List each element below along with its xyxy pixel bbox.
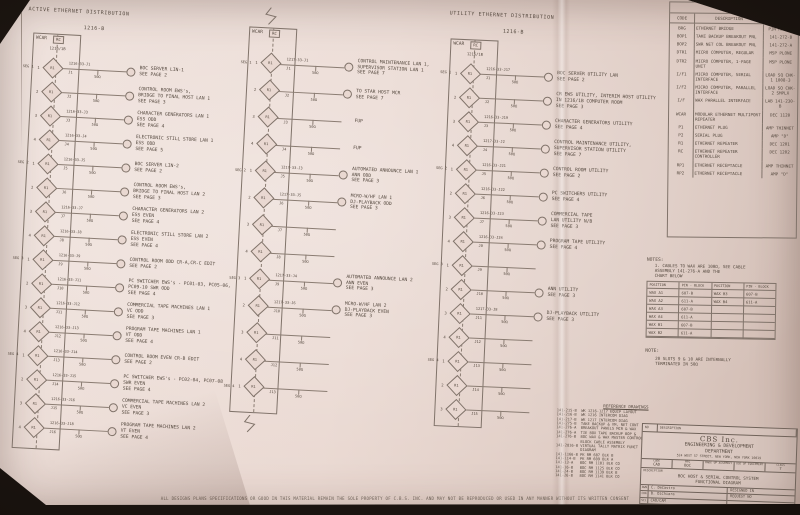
repeater-diamond-icon: R1 bbox=[253, 187, 274, 208]
cable-number: 1217-33-J2 bbox=[483, 139, 505, 144]
jack-label: J2 bbox=[285, 93, 290, 97]
field-cell: CODE CAD bbox=[641, 459, 672, 468]
destination-label: TO STAR HOST MCR SEE PAGE 7 bbox=[356, 89, 401, 103]
destination: PROGRAM TAPE MACHINES LAN 1 VT ODD SEE P… bbox=[112, 326, 201, 348]
connector-circle-icon bbox=[125, 91, 134, 100]
segment-label bbox=[224, 358, 238, 359]
slot-number: 2 bbox=[444, 286, 450, 291]
drawn-label: DWN bbox=[641, 485, 649, 491]
destination-label: BOC SERVER UTILITY LAN SEE PAGE 2 bbox=[557, 71, 618, 86]
repeater-label: R1 bbox=[44, 185, 49, 189]
connector-circle-icon bbox=[338, 170, 347, 179]
connector-circle-icon bbox=[119, 211, 128, 220]
destination-label: ELECTRONIC STILL STORE LAN 1 ESS ODD SEE… bbox=[135, 135, 213, 157]
slot-number: 1 bbox=[445, 262, 451, 267]
terminator-label: 50Ω bbox=[85, 243, 92, 247]
tap-line: 1216-33-J1 J1 50Ω bbox=[68, 56, 127, 83]
segment-label bbox=[15, 186, 29, 187]
repeater-label: R1 bbox=[260, 223, 265, 227]
segment-label bbox=[237, 115, 251, 116]
tap-line: 1216-33-J19 J3 50Ω bbox=[483, 110, 542, 137]
repeater-diamond-icon: R1 bbox=[455, 183, 476, 204]
jack-label: J8 bbox=[276, 255, 281, 259]
segment-label bbox=[232, 196, 246, 197]
photo-background: ACTIVE ETHERNET DISTRIBUTION 1216-B WCAR… bbox=[0, 0, 800, 515]
jack-label: J11 bbox=[475, 316, 482, 320]
destination: PC SWITCHER EWS's - PC02-04, PC07-08 SWR… bbox=[110, 374, 223, 398]
segment-label bbox=[438, 96, 452, 97]
legend-description: ETHERNET RECEPTACLE bbox=[692, 169, 762, 178]
repeater-diamond-icon: R1 bbox=[26, 369, 47, 390]
repeater-label: R1 bbox=[468, 71, 472, 75]
section-title: ACTIVE ETHERNET DISTRIBUTION bbox=[28, 6, 129, 17]
tap-line: 1216-33-J13 J12 50Ω bbox=[54, 320, 113, 347]
connector-circle-icon bbox=[115, 283, 124, 292]
repeater-label: R1 bbox=[43, 209, 48, 213]
cable-number: 1216-33-J5 bbox=[64, 157, 86, 162]
connector-circle-icon bbox=[116, 259, 125, 268]
legend-description: MICRO COMPUTER, 1-PAGE UNIT bbox=[694, 56, 764, 70]
cable-number: 1217-33-J1 bbox=[287, 57, 309, 62]
repeater-label: R1 bbox=[33, 401, 38, 405]
destination: CONTROL MAINTENANCE UTILITY, SUPERVISOR … bbox=[540, 140, 631, 162]
jack-label: J9 bbox=[477, 268, 481, 272]
destination-label: PROGRAM TAPE MACHINES LAN 2 VT EVEN SEE … bbox=[120, 423, 196, 445]
legend-mfg: LAB 141-230-B bbox=[763, 97, 797, 111]
tap-line: 1216-33-J12 J11 50Ω bbox=[55, 296, 114, 323]
segment-label bbox=[8, 330, 22, 331]
cable-number: 1216-33-J14 bbox=[54, 349, 78, 354]
segment-label bbox=[429, 312, 443, 313]
tap-line: 1216-33-J8 J8 50Ω bbox=[59, 224, 118, 251]
repeater-diamond-icon: R1 bbox=[39, 129, 60, 150]
designed-label: DESIGNED IN bbox=[728, 488, 756, 495]
jack-label: J8 bbox=[59, 238, 64, 242]
break-symbol-icon bbox=[242, 415, 257, 434]
repeater-label: R1 bbox=[262, 196, 267, 200]
cable-number: 1217-33-J6 bbox=[274, 300, 296, 305]
repeater-diamond-icon: R1 bbox=[34, 225, 55, 246]
destination: PC SWITCHERS UTILITY SEE PAGE 4 bbox=[539, 190, 608, 205]
terminator-label: 50Ω bbox=[510, 128, 517, 132]
jack-label: J12 bbox=[271, 362, 278, 366]
slot-number: 1 bbox=[30, 160, 36, 165]
destination-label: CONTROL ROOM UTILITY SEE PAGE 2 bbox=[553, 167, 609, 181]
legend-table: LEGEND CODE DESCRIPTION MFG BRG ETHERNET… bbox=[667, 1, 799, 238]
repeater-controller-box: RC bbox=[470, 41, 481, 49]
tap-line: 1216-33-J24 J8 50Ω bbox=[478, 230, 537, 257]
destination-label: FUP bbox=[354, 119, 363, 125]
destination-label: DJ-PLAYBACK UTILITY SEE PAGE 3 bbox=[546, 311, 599, 325]
tap-line: J8 50Ω bbox=[276, 239, 335, 269]
destination: AUTOMATED ANNOUNCE LAN 1 ANN ODD SEE PAG… bbox=[338, 166, 418, 188]
legend-mfg: DEC 1120 bbox=[763, 110, 797, 124]
destination-label: CONTROL MAINTENANCE LAN 1, SUPERVISOR ST… bbox=[357, 59, 430, 81]
repeater-diamond-icon: R1 bbox=[459, 87, 480, 108]
repeater-diamond-icon: R1 bbox=[30, 297, 51, 318]
slot-number: 4 bbox=[22, 328, 28, 333]
tap-line: J14 50Ω bbox=[472, 374, 531, 401]
cable-number: 1216-33-J1 bbox=[69, 61, 91, 66]
legend-code: I/F1 bbox=[669, 69, 693, 83]
terminator-label: 50Ω bbox=[504, 248, 511, 252]
wcar-label: WCAR bbox=[453, 42, 464, 47]
paper-sheet: ACTIVE ETHERNET DISTRIBUTION 1216-B WCAR… bbox=[0, 0, 800, 515]
repeater-diamond-icon: R1 bbox=[40, 105, 61, 126]
destination: CR EWS UTILITY, INTERIM HOST UTILITY IN … bbox=[543, 92, 656, 115]
tap-line: 1216-33-J18 J16 50Ω bbox=[49, 416, 108, 443]
jack-label: J10 bbox=[476, 292, 483, 296]
repeater-controller-box: RC bbox=[269, 29, 280, 38]
repeater-controller-box: RC bbox=[53, 36, 64, 45]
destination: FUP bbox=[341, 116, 363, 126]
legend-mfg: LOAD SQ CHK-1 1008-3 bbox=[763, 70, 797, 84]
tap-line: 1216-33-J17 J1 50Ω bbox=[486, 62, 545, 89]
legend-code: P2 bbox=[669, 131, 693, 139]
jack-label: J7 bbox=[278, 228, 283, 232]
terminator-label: 50Ω bbox=[312, 70, 319, 74]
connector-circle-icon bbox=[538, 216, 547, 225]
tap-line: 1217-33-J3 J5 50Ω bbox=[280, 158, 339, 188]
terminator-label: 50Ω bbox=[502, 296, 509, 300]
jack-label: J12 bbox=[474, 340, 481, 344]
terminator-label: 50Ω bbox=[305, 205, 312, 209]
tap-line: 1217-33-J4 J9 50Ω bbox=[274, 266, 333, 296]
legend-code: BOP2 bbox=[670, 40, 694, 48]
repeater-label: R1 bbox=[467, 95, 471, 99]
terminator-label: 50Ω bbox=[503, 272, 510, 276]
repeater-label: R1 bbox=[255, 331, 260, 335]
cable-number: 1216-33-J17 bbox=[486, 67, 510, 72]
legend-description: MODULAR ETHERNET MULTIPORT REPEATER bbox=[693, 109, 763, 123]
drawn-name: C. DeCastro bbox=[649, 485, 677, 492]
tap-line: 1216-33-J21 J5 50Ω bbox=[481, 158, 540, 185]
repeater-diamond-icon: R1 bbox=[445, 398, 466, 419]
jack-label: J7 bbox=[61, 214, 66, 218]
cable-number: 1216-33-J8 bbox=[60, 229, 82, 234]
tap-line: 1216-33-J22 J6 50Ω bbox=[480, 182, 539, 209]
repeater-label: R1 bbox=[464, 167, 468, 171]
repeater-label: R1 bbox=[252, 385, 257, 389]
repeater-diamond-icon: R1 bbox=[448, 326, 469, 347]
destination-label: CHARACTER GENERATORS UTILITY SEE PAGE 4 bbox=[555, 119, 633, 134]
slot-number: 2 bbox=[24, 280, 30, 285]
connector-circle-icon bbox=[126, 67, 135, 76]
destination-label: FUP bbox=[353, 146, 362, 152]
tap-line: 1217-33-J2 J4 50Ω bbox=[482, 134, 541, 161]
repeater-label: R1 bbox=[37, 329, 42, 333]
destination-label: COMMERCIAL TAPE LAN UTILITY N/B SEE PAGE… bbox=[550, 212, 592, 232]
drawing-number-row: DRAWING NO & REV 141-120-D SHEET bbox=[640, 504, 794, 515]
tap-line: J9 50Ω bbox=[477, 254, 536, 281]
tap-line: J3 50Ω bbox=[283, 104, 342, 134]
destination: AUTOMATED ANNOUNCE LAN 2 ANN EVEN SEE PA… bbox=[333, 274, 413, 296]
cell-pin-block-2 bbox=[742, 330, 774, 339]
slot-number: 2 bbox=[34, 88, 40, 93]
destination: CONTROL ROOM EWS's, BRIDGE TO FINAL HOST… bbox=[120, 182, 206, 204]
destination-label: BOC SERVER LIN-2 SEE PAGE 2 bbox=[134, 162, 179, 176]
tap-line: 1216-33-J3 J3 50Ω bbox=[65, 104, 124, 131]
terminator-label: 50Ω bbox=[83, 290, 90, 294]
destination-label: ANN UTILITY SEE PAGE 3 bbox=[547, 287, 578, 300]
jack-label: J11 bbox=[272, 336, 279, 340]
segment-label bbox=[428, 336, 442, 337]
connector-circle-icon bbox=[543, 96, 552, 105]
jack-label: J15 bbox=[51, 406, 58, 410]
repeater-label: R1 bbox=[466, 119, 470, 123]
slot-number: 4 bbox=[27, 232, 33, 237]
terminator-label: 50Ω bbox=[500, 344, 507, 348]
connector-circle-icon bbox=[121, 163, 130, 172]
sheet-label: SHEET bbox=[771, 509, 795, 515]
table-body: WAX A1 607-B WAX B3 607-B WAX A2 611-A W… bbox=[647, 289, 776, 339]
segment-label: SEG 3 bbox=[11, 256, 25, 261]
jack-label: J4 bbox=[64, 142, 69, 146]
destination: PC SWITCHER EWS's - PC01-03, PC05-06, PC… bbox=[115, 278, 231, 302]
tap-line: 1216-33-J9 J9 50Ω bbox=[58, 248, 117, 275]
slot-number: 2 bbox=[19, 376, 25, 381]
notes-block: NOTES: 1. CABLES TO WAX ARE 100Ω, SEE CA… bbox=[645, 257, 793, 369]
jack-label: J13 bbox=[269, 389, 276, 393]
sub-ref-label: 1216/1B bbox=[467, 51, 483, 57]
slot-number: 1 bbox=[453, 70, 459, 75]
tap-line: J12 50Ω bbox=[474, 326, 533, 353]
repeater-label: R1 bbox=[48, 113, 53, 117]
note-2-heading: NOTE: bbox=[645, 349, 659, 354]
wcar-label: WCAR bbox=[36, 36, 47, 42]
repeater-diamond-icon: R1 bbox=[256, 133, 277, 154]
terminator-label: 50Ω bbox=[303, 232, 310, 236]
destination: ANN UTILITY SEE PAGE 3 bbox=[534, 286, 578, 300]
legend-row: RP2 ETHERNET RECEPTACLE AMP "D" bbox=[668, 169, 796, 179]
terminator-label: 50Ω bbox=[509, 152, 516, 156]
cable-number: 1216-33-J24 bbox=[479, 235, 503, 240]
repeater-label: R1 bbox=[46, 161, 51, 165]
repeater-diamond-icon: R1 bbox=[36, 177, 57, 198]
jack-label: J15 bbox=[471, 412, 478, 416]
field-value: BOC bbox=[672, 463, 702, 469]
destination: ELECTRONIC STILL STORE LAN 1 ESS ODD SEE… bbox=[122, 134, 213, 157]
slot-number: 2 bbox=[439, 382, 445, 387]
jack-label: J14 bbox=[52, 382, 59, 386]
cable-number: 1216-33-J4 bbox=[65, 133, 87, 138]
repeater-diamond-icon: R1 bbox=[252, 214, 273, 235]
destination: BOC SERVER LIN-2 SEE PAGE 2 bbox=[121, 161, 179, 176]
tap-line: 1217-33-J6 J10 50Ω bbox=[273, 293, 332, 323]
legend-code: P1 bbox=[669, 122, 693, 130]
slot-number: 4 bbox=[243, 248, 249, 253]
terminator-label: 50Ω bbox=[89, 171, 96, 175]
slot-number: 4 bbox=[17, 424, 23, 429]
tap-line: 1216-33-J11 J10 50Ω bbox=[57, 272, 116, 299]
destination: MCRO-W/HF LAN 2 DJ-PLAYBACK EVEN SEE PAG… bbox=[331, 301, 389, 322]
legend-code: I/F bbox=[669, 96, 693, 110]
repeater-diamond-icon: R1 bbox=[454, 207, 475, 228]
jack-label: J7 bbox=[480, 220, 484, 224]
repeater-diamond-icon: R1 bbox=[31, 273, 52, 294]
legend-row: RC ETHERNET REPEATER CONTROLLER DEC 1202 bbox=[669, 147, 797, 162]
connector-circle-icon bbox=[107, 426, 116, 435]
connector-circle-icon bbox=[331, 305, 340, 314]
connector-circle-icon bbox=[544, 72, 553, 81]
segment-label bbox=[18, 138, 32, 139]
repeater-diamond-icon: R1 bbox=[250, 241, 271, 262]
tap-line: J11 50Ω bbox=[272, 320, 331, 350]
slot-number: 1 bbox=[35, 64, 41, 69]
repeater-label: R1 bbox=[263, 169, 268, 173]
repeater-diamond-icon: R1 bbox=[29, 321, 50, 342]
repeater-label: R1 bbox=[266, 115, 271, 119]
tap-line: 1216-33-J14 J13 50Ω bbox=[53, 344, 112, 371]
destination-label: AUTOMATED ANNOUNCE LAN 1 ANN ODD SEE PAG… bbox=[351, 167, 418, 188]
destination-label: PROGRAM TAPE UTILITY SEE PAGE 4 bbox=[549, 239, 605, 253]
repeater-label: R1 bbox=[253, 358, 258, 362]
segment-label bbox=[424, 408, 438, 409]
repeater-diamond-icon: R1 bbox=[35, 201, 56, 222]
segment-label: SEG 1 bbox=[21, 64, 35, 69]
repeater-diamond-icon: R1 bbox=[32, 249, 53, 270]
jack-label: J4 bbox=[483, 148, 487, 152]
slot-number: 1 bbox=[248, 168, 254, 173]
cable-number: 1217-33-J4 bbox=[275, 273, 297, 278]
wcar-label: WCAR bbox=[252, 30, 263, 36]
terminator-label: 50Ω bbox=[309, 124, 316, 128]
terminator-label: 50Ω bbox=[84, 266, 91, 270]
terminator-label: 50Ω bbox=[79, 362, 86, 366]
segment-label bbox=[4, 401, 18, 402]
connector-circle-icon bbox=[539, 192, 548, 201]
repeater-label: R1 bbox=[460, 263, 464, 267]
slot-number: 4 bbox=[238, 356, 244, 361]
repeater-diamond-icon: R1 bbox=[258, 106, 279, 127]
cable-number: 1216-33-J16 bbox=[51, 397, 75, 402]
segment-label bbox=[434, 192, 448, 193]
connector-circle-icon bbox=[337, 197, 346, 206]
cable-number: 1217-33-J3 bbox=[281, 165, 303, 170]
connector-circle-icon bbox=[110, 379, 119, 388]
destination-label: MCRO-W/HF LAN 2 DJ-PLAYBACK EVEN SEE PAG… bbox=[344, 301, 389, 321]
repeater-label: R1 bbox=[47, 137, 52, 141]
repeater-label: R1 bbox=[39, 281, 44, 285]
repeater-diamond-icon: R1 bbox=[245, 349, 266, 370]
segment-label: SEG 4 bbox=[222, 383, 236, 388]
segment-label: SEG 1 bbox=[439, 70, 453, 75]
legend-row: WCAR MODULAR ETHERNET MULTIPORT REPEATER… bbox=[669, 109, 797, 124]
segment-label bbox=[225, 331, 239, 332]
slot-number: 3 bbox=[239, 329, 245, 334]
tap-line: J4 50Ω bbox=[282, 131, 341, 161]
connector-circle-icon bbox=[343, 89, 352, 98]
destination: PROGRAM TAPE UTILITY SEE PAGE 4 bbox=[536, 238, 605, 253]
jack-label: J1 bbox=[486, 76, 490, 80]
connector-circle-icon bbox=[333, 278, 342, 287]
destination: DJ-PLAYBACK UTILITY SEE PAGE 3 bbox=[533, 310, 599, 325]
repeater-label: R1 bbox=[463, 191, 467, 195]
signature-right: DESIGNED IN REQUEST NO bbox=[728, 488, 795, 509]
jack-label: J3 bbox=[283, 120, 288, 124]
destination: FUP bbox=[340, 143, 362, 153]
terminator-label: 50Ω bbox=[298, 340, 305, 344]
jack-label: J2 bbox=[485, 100, 489, 104]
repeater-diamond-icon: R1 bbox=[450, 302, 471, 323]
destination-label: CHARACTER GENERATORS LAN 1 ESS ODD SEE P… bbox=[136, 111, 209, 133]
destination: CONTROL MAINTENANCE LAN 1, SUPERVISOR ST… bbox=[344, 58, 430, 80]
sheet-ref-label: 1216-B bbox=[83, 25, 104, 32]
destination: MCRO-W/HF LAN 1 DJ-PLAYBACK ODD SEE PAGE… bbox=[337, 193, 392, 214]
tap-line: J2 50Ω bbox=[284, 77, 343, 107]
jack-label: J10 bbox=[57, 286, 64, 290]
jack-label: J3 bbox=[484, 124, 488, 128]
repeater-diamond-icon: R1 bbox=[246, 322, 267, 343]
slot-number: 1 bbox=[236, 383, 242, 388]
destination: ELECTRONIC STILL STORE LAN 2 ESS EVEN SE… bbox=[117, 230, 208, 253]
destination-label: PC SWITCHER EWS's - PC01-03, PC05-06, PC… bbox=[128, 279, 231, 302]
title-block: NO DESCRIPTION CBS Inc. ENGINEERING & DE… bbox=[639, 423, 798, 515]
jack-label: J5 bbox=[280, 174, 285, 178]
note-1-text: 1. CABLES TO WAX ARE 100Ω, SEE CABLE ASS… bbox=[655, 263, 793, 280]
segment-label bbox=[14, 210, 28, 211]
jack-label: J9 bbox=[58, 262, 63, 266]
jack-label: J10 bbox=[273, 309, 280, 313]
sheet-ref-label: 1216-B bbox=[503, 29, 524, 36]
terminator-label: 50Ω bbox=[306, 178, 313, 182]
segment-label bbox=[235, 142, 249, 143]
destination-label: CR EWS UTILITY, INTERIM HOST UTILITY IN … bbox=[556, 92, 656, 114]
field-label: MADE UP ASSEMBLY bbox=[704, 461, 734, 465]
destination-label: COMMERCIAL TAPE MACHINES LAN 2 VC EVEN S… bbox=[121, 399, 205, 421]
cable-number: 1216-33-J9 bbox=[59, 253, 81, 258]
destination: BOC SERVER LIN-1 SEE PAGE 2 bbox=[126, 65, 184, 80]
repeater-label: R1 bbox=[269, 61, 274, 65]
repeater-diamond-icon: R1 bbox=[456, 159, 477, 180]
tap-line: J15 50Ω bbox=[471, 398, 530, 425]
repeater-label: R1 bbox=[259, 250, 264, 254]
legend-row: I/F WAX PARALLEL INTERFACE LAB 141-230-B bbox=[669, 96, 797, 111]
destination: BOC SERVER UTILITY LAN SEE PAGE 2 bbox=[544, 71, 618, 86]
slot-number: 4 bbox=[446, 238, 452, 243]
request-row: REQUEST NO bbox=[728, 494, 795, 503]
jack-label: J14 bbox=[472, 388, 479, 392]
connector-circle-icon bbox=[124, 115, 133, 124]
segment-label bbox=[5, 378, 19, 379]
terminator-label: 50Ω bbox=[302, 259, 309, 263]
slot-number: 2 bbox=[246, 194, 252, 199]
repeater-label: R1 bbox=[50, 89, 55, 93]
repeater-label: R1 bbox=[457, 335, 461, 339]
tap-line: J6 50Ω bbox=[62, 176, 121, 203]
repeater-label: R1 bbox=[461, 239, 465, 243]
slot-number: 1 bbox=[242, 275, 248, 280]
connector-circle-icon bbox=[344, 62, 353, 71]
field-label: USE OF EQUIPMENT bbox=[735, 462, 765, 466]
tap-line: J2 50Ω bbox=[67, 80, 126, 107]
legend-mfg: DEC 1202 bbox=[763, 148, 797, 162]
segment-label bbox=[13, 234, 27, 235]
table-row: WAX B2 611-A bbox=[647, 329, 775, 339]
cable-number: 1216-33-J19 bbox=[484, 115, 508, 120]
repeater-label: R1 bbox=[459, 287, 463, 291]
slot-number: 2 bbox=[29, 184, 35, 189]
repeater-diamond-icon: R1 bbox=[248, 295, 269, 316]
destination: TO STAR HOST MCR SEE PAGE 7 bbox=[343, 88, 401, 103]
legend-description: ETHERNET REPEATER CONTROLLER bbox=[693, 147, 763, 161]
segment-label bbox=[437, 120, 451, 121]
terminator-label: 50Ω bbox=[75, 434, 82, 438]
repeater-diamond-icon: R1 bbox=[41, 81, 62, 102]
cable-number: 1217-33-J5 bbox=[280, 192, 302, 197]
repeater-diamond-icon: R1 bbox=[27, 345, 48, 366]
destination: COMMERCIAL TAPE MACHINES LAN 1 VC ODD SE… bbox=[113, 302, 210, 325]
